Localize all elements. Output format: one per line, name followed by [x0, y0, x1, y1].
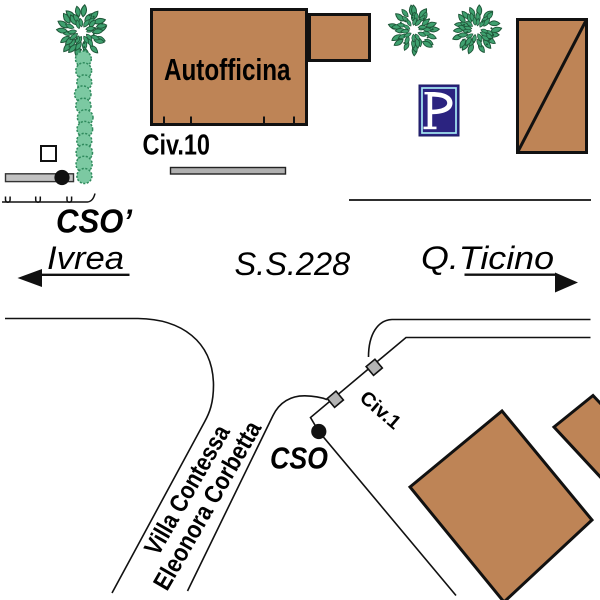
svg-text:Civ.10: Civ.10 — [143, 130, 211, 162]
svg-text:Autofficina: Autofficina — [164, 53, 291, 87]
svg-text:CSO: CSO — [270, 442, 328, 476]
svg-text:S.S.228: S.S.228 — [235, 246, 351, 282]
svg-text:Ivrea: Ivrea — [47, 240, 124, 276]
svg-text:Q.Ticino: Q.Ticino — [421, 240, 554, 276]
svg-text:CSO’: CSO’ — [56, 204, 133, 241]
